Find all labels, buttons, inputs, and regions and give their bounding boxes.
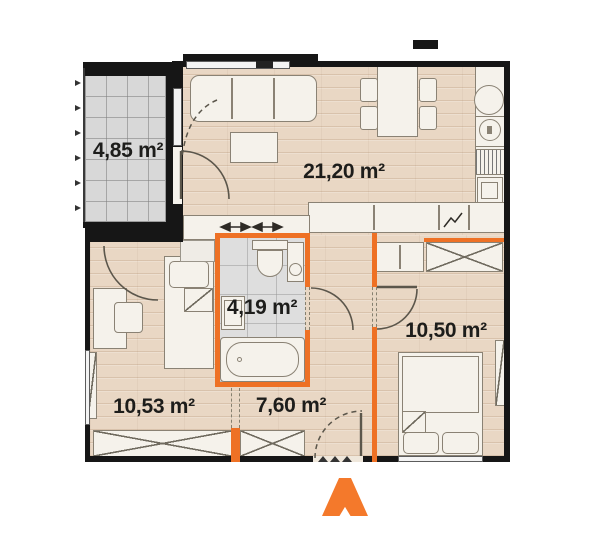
bedroom-left-area-label: 10,53 m²	[113, 395, 195, 419]
living-room-area-label: 21,20 m²	[303, 160, 385, 184]
bathroom-door-arc	[311, 288, 353, 330]
sliding-door-arrows-icon	[221, 223, 282, 231]
fold-out-symbol-icon	[444, 213, 462, 227]
balcony-door-arc	[181, 151, 229, 199]
entry-door-arc	[315, 411, 362, 458]
plan-symbols	[0, 0, 600, 557]
window-swing-arc	[182, 100, 217, 158]
bathroom-area-label: 4,19 m²	[227, 296, 297, 320]
bedroom-left-door-arc	[104, 246, 158, 300]
floor-plan: 4,85 m² 21,20 m² 4,19 m² 10,50 m² 10,53 …	[0, 0, 600, 557]
hallway-area-label: 7,60 m²	[256, 394, 326, 418]
entry-threshold-ticks	[318, 456, 352, 462]
bedroom-right-area-label: 10,50 m²	[405, 319, 487, 343]
balcony-area-label: 4,85 m²	[93, 139, 163, 163]
